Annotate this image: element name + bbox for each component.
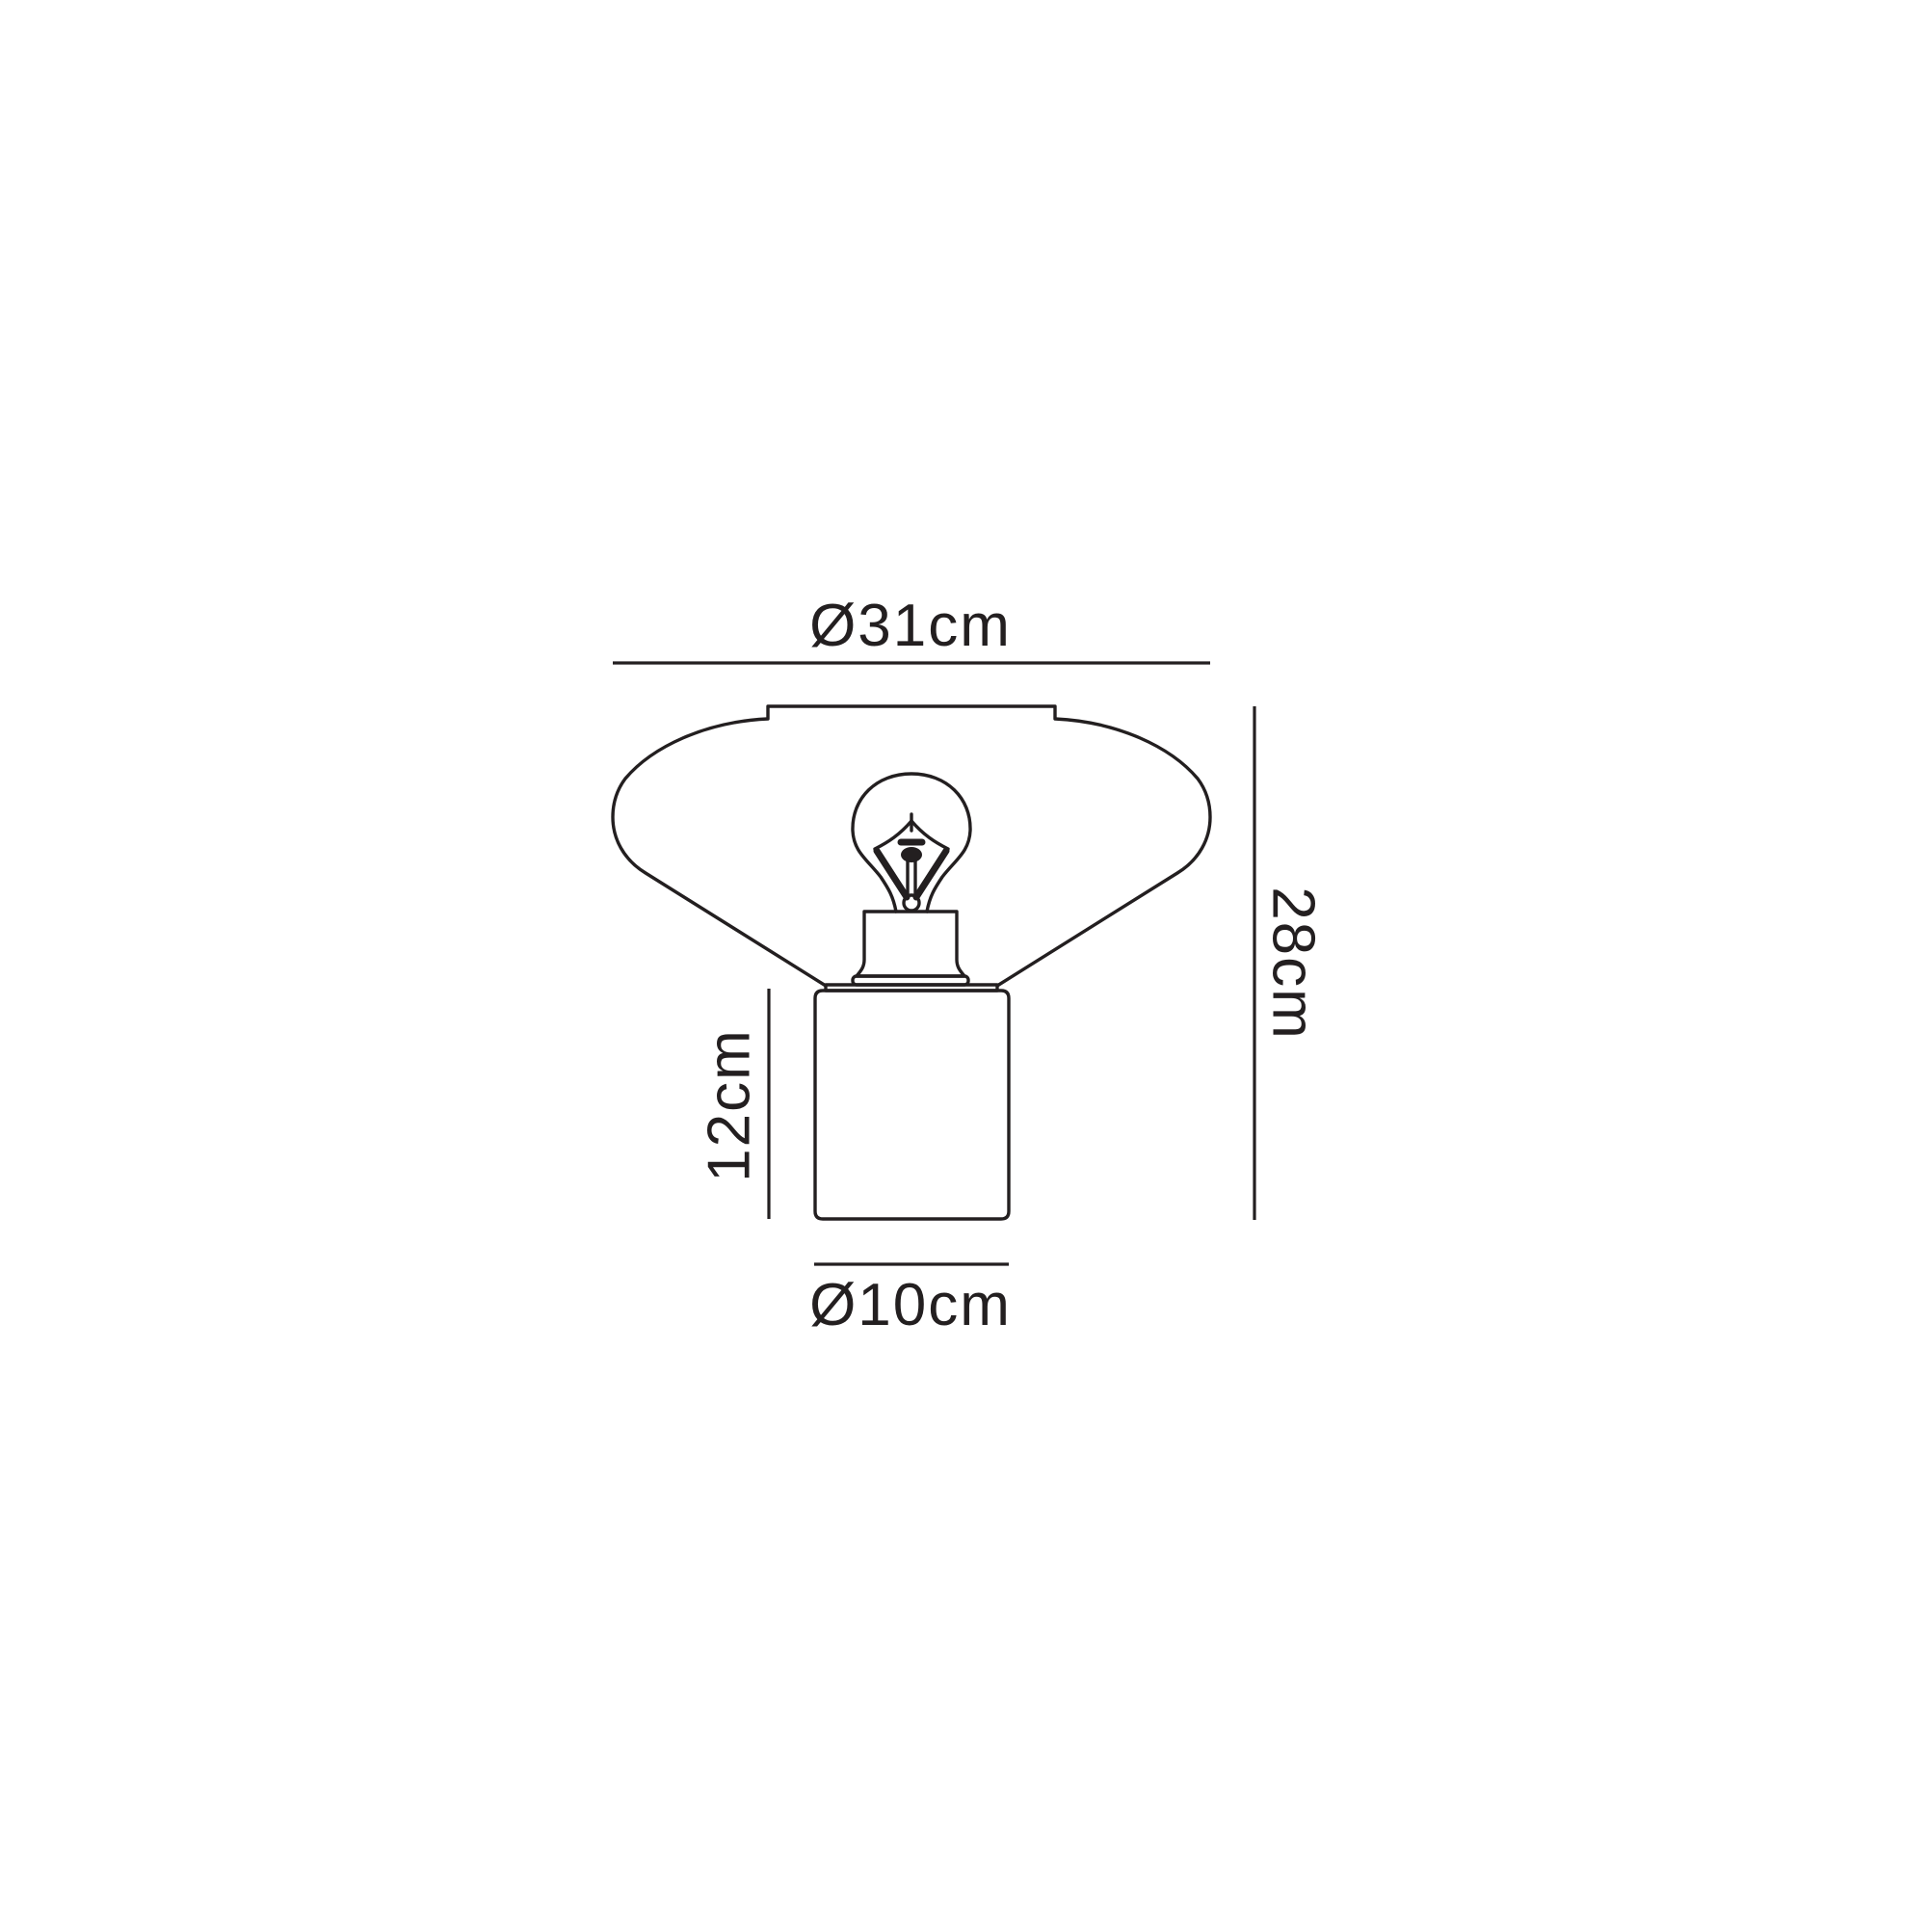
lamp-dimension-diagram: Ø31cm 28cm 12cm Ø10cm [0,0,1927,1927]
filament [875,814,948,911]
total-height-label: 28cm [1260,887,1327,1041]
socket-body [857,912,964,976]
lamp-shade-outline [613,706,1210,986]
filament-bead [901,847,922,862]
base-height-label: 12cm [697,1028,763,1182]
shade-diameter-label: Ø31cm [809,593,1012,659]
base-diameter-label: Ø10cm [809,1272,1012,1338]
diagram-canvas: Ø31cm 28cm 12cm Ø10cm [0,0,1927,1927]
filament-loop [904,895,919,911]
base-cylinder [815,991,1009,1219]
